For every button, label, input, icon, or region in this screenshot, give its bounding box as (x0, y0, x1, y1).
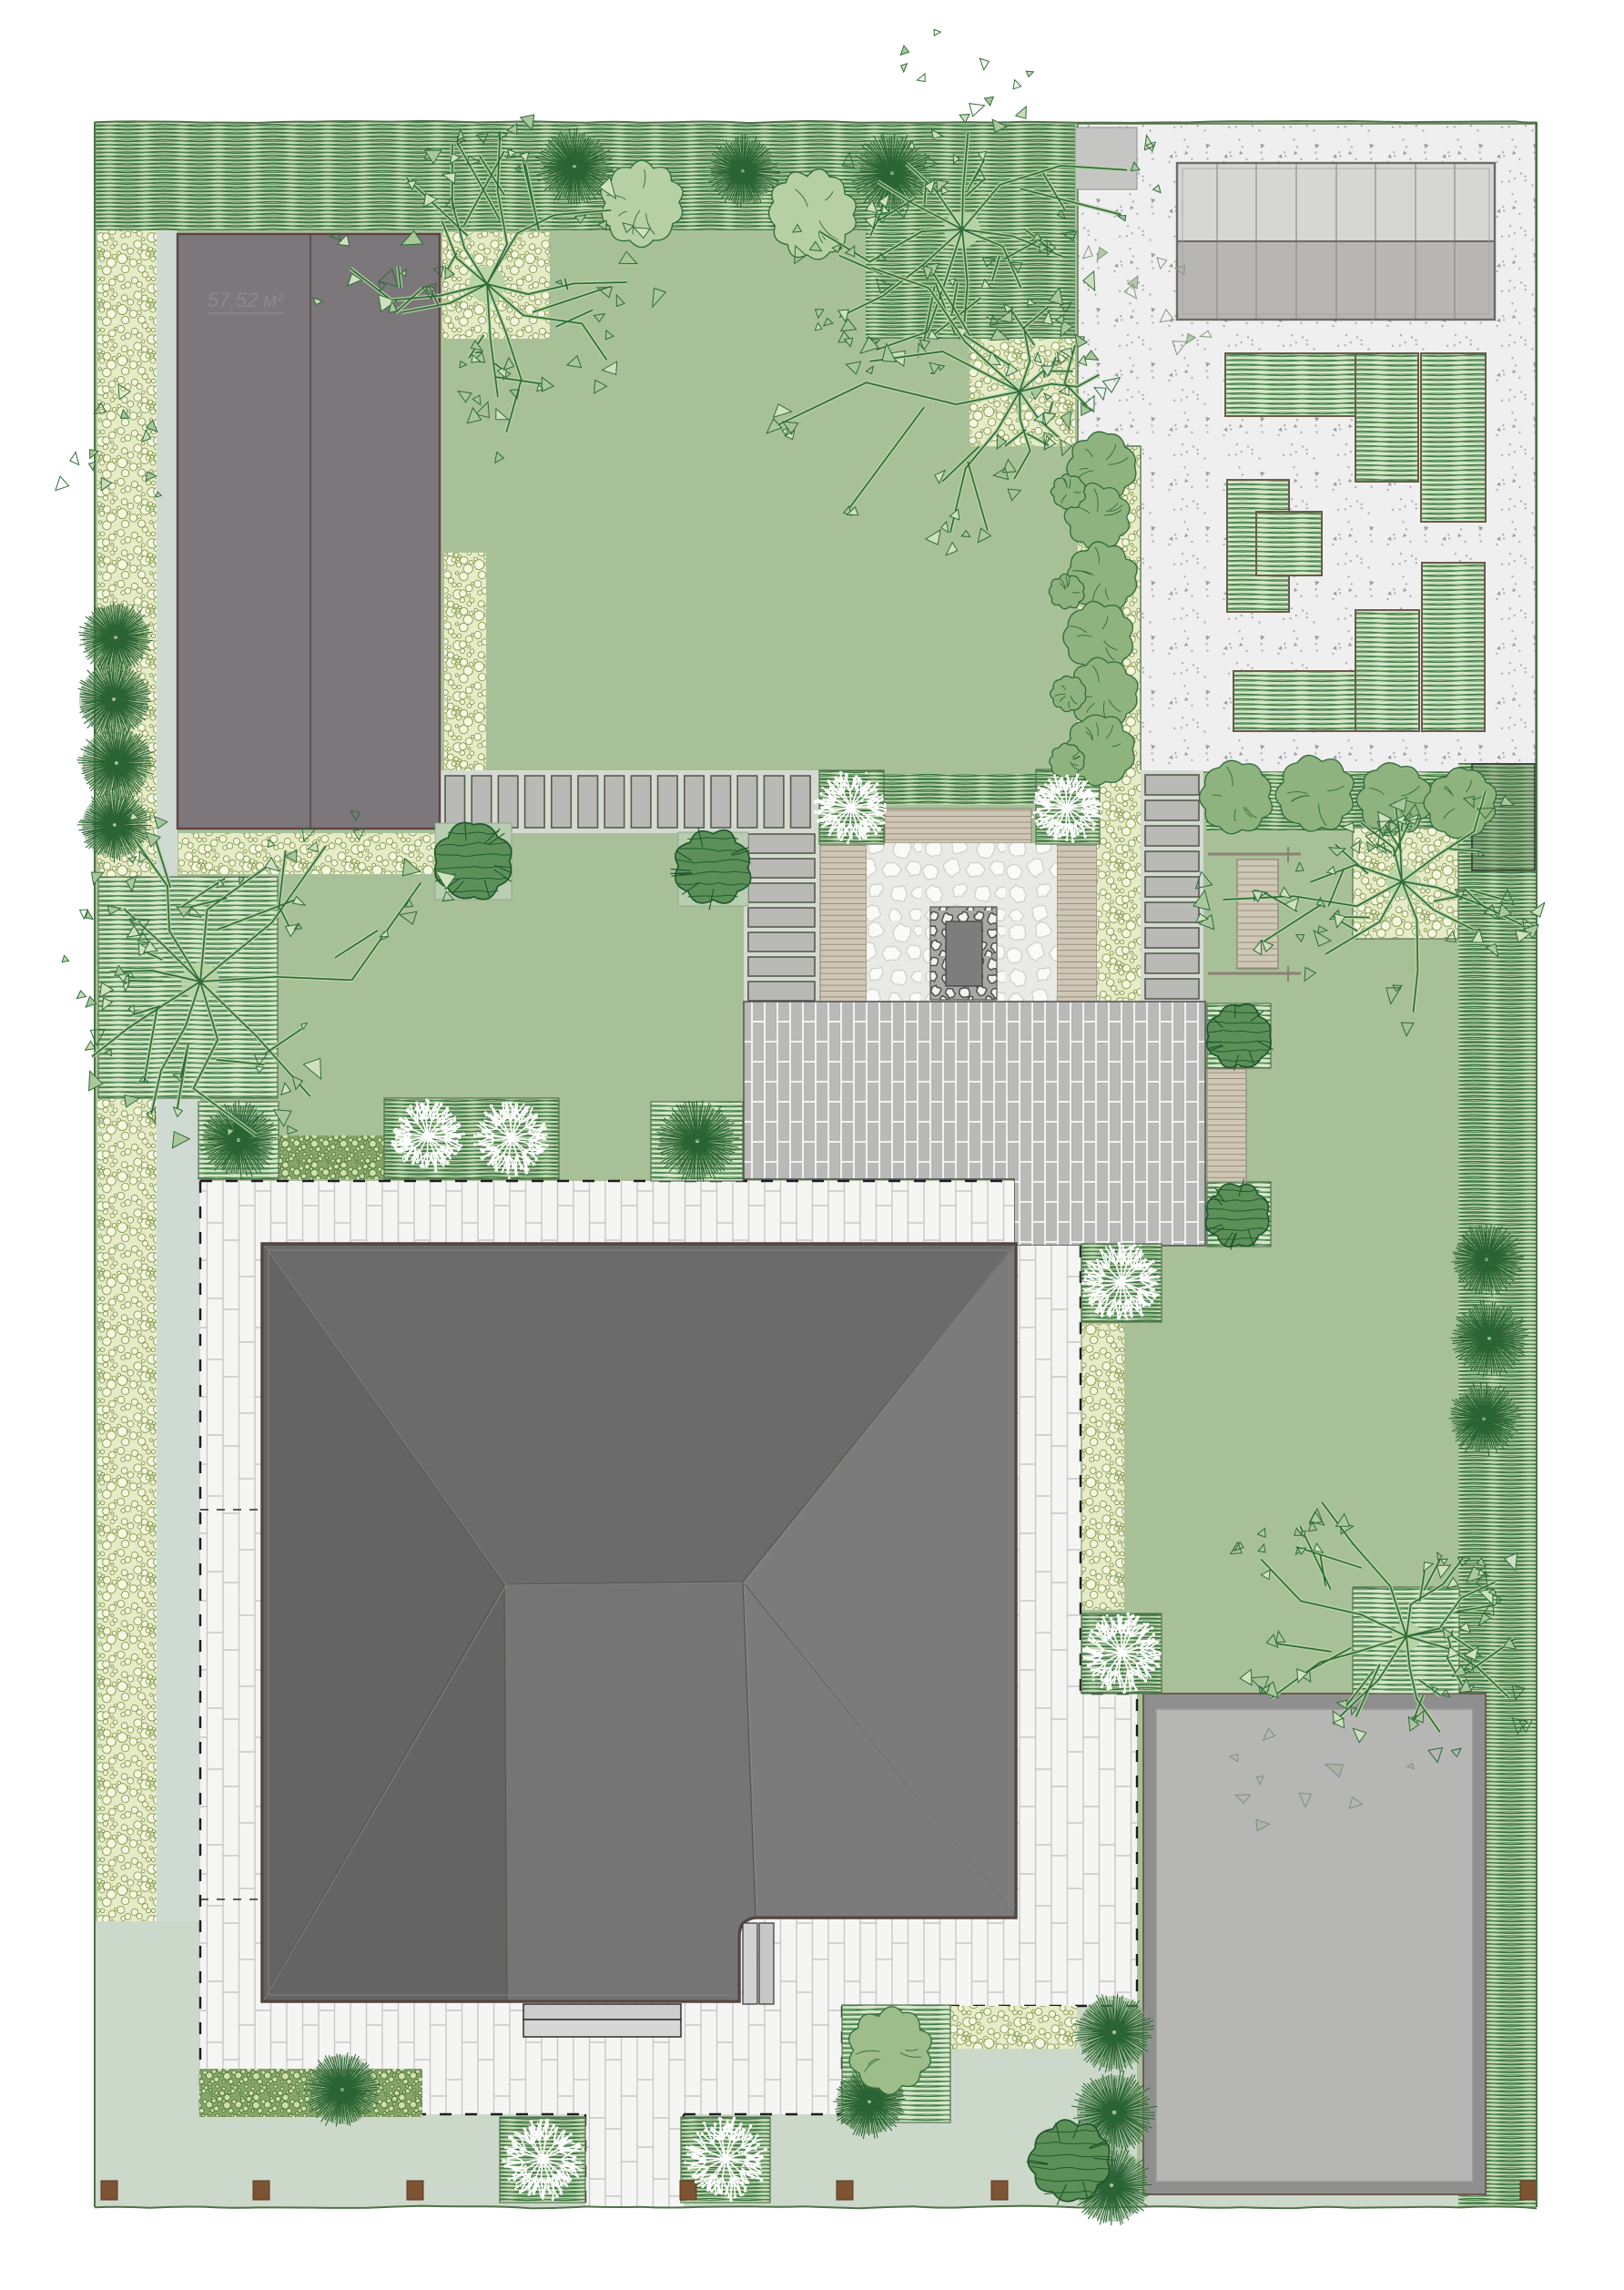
svg-text:57,52 м²: 57,52 м² (208, 289, 284, 311)
